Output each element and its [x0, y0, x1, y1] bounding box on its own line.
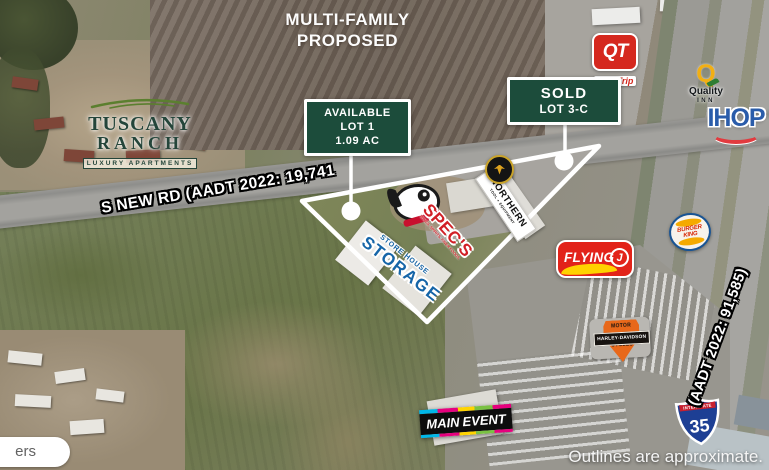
map-label-fragment: ers: [0, 437, 70, 467]
quality-inn-q-icon: Q: [696, 62, 715, 87]
available-acreage: 1.09 AC: [307, 134, 408, 148]
outlines-footnote: Outlines are approximate.: [568, 447, 763, 467]
ihop-logo: IHOP: [698, 106, 769, 144]
northern-tool-eagle-icon: [494, 165, 505, 175]
quiktrip-abbr: QT: [603, 41, 627, 63]
residential-building: [15, 394, 52, 408]
multifamily-line2: PROPOSED: [255, 30, 440, 51]
tuscany-ranch-name-line2: RANCH: [75, 134, 205, 152]
flying-j-name: FLYING: [564, 250, 614, 265]
harley-davidson-logo: MOTOR CYCLES HARLEY-DAVIDSON: [593, 319, 651, 368]
tuscany-ranch-logo: TUSCANY RANCH LUXURY APARTMENTS: [75, 96, 205, 170]
sold-lot: LOT 3-C: [510, 103, 618, 117]
burger-king-bun-icon: BURGER KING: [666, 210, 713, 254]
available-lot-sign: AVAILABLE LOT 1 1.09 AC: [304, 99, 411, 156]
sold-lot-sign: SOLD LOT 3-C: [507, 77, 621, 125]
gas-canopy: [592, 7, 641, 25]
burger-king-bottom-bun-icon: [678, 236, 705, 247]
harley-bar-text: HARLEY-DAVIDSON: [593, 331, 650, 347]
tuscany-ranch-tagline: LUXURY APARTMENTS: [83, 158, 198, 169]
tuscany-swash-icon: [88, 97, 192, 109]
aerial-site-map: MULTI-FAMILY PROPOSED S NEW RD (AADT 202…: [0, 0, 769, 470]
available-title: AVAILABLE: [307, 106, 408, 120]
main-event-word1: MAIN: [426, 414, 460, 431]
quiktrip-qt-icon: QT: [592, 33, 638, 71]
burger-king-logo: BURGER KING: [666, 210, 713, 254]
interstate-shield-number: 35: [689, 415, 711, 437]
northern-tool-emblem-icon: [485, 155, 514, 184]
harley-top-text: MOTOR: [603, 319, 639, 330]
sold-title: SOLD: [510, 85, 618, 103]
flying-j-logo: FLYING J: [556, 240, 634, 278]
quality-inn-name: Quality: [682, 87, 730, 97]
main-event-word2: EVENT: [462, 411, 506, 429]
flying-j-mark: J: [616, 252, 622, 264]
multifamily-proposed-label: MULTI-FAMILY PROPOSED: [255, 9, 440, 51]
quality-inn-logo: Q Quality INN: [682, 62, 730, 105]
available-lot: LOT 1: [307, 120, 408, 134]
tuscany-ranch-name-line1: TUSCANY: [75, 114, 205, 134]
residential-building: [70, 419, 105, 435]
multifamily-line1: MULTI-FAMILY: [255, 9, 440, 30]
flying-j-j-icon: J: [610, 248, 629, 267]
terrain-trees-left: [0, 48, 50, 168]
ihop-smile-icon: [712, 125, 760, 144]
